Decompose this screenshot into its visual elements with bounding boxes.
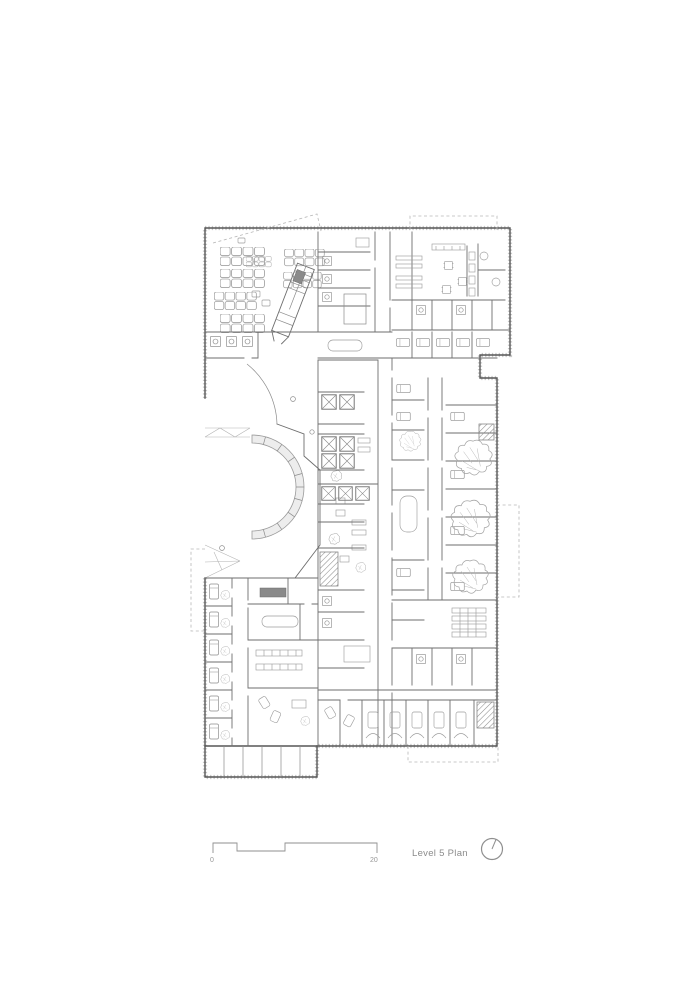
floor-plan-drawing: 0 20 Level 5 Plan	[0, 0, 700, 990]
bed	[210, 640, 219, 655]
lounge-chairs	[258, 696, 310, 726]
bed	[451, 526, 465, 534]
column-bubble	[220, 546, 225, 551]
fixture	[457, 655, 466, 664]
bed	[456, 339, 469, 347]
south-stair	[477, 702, 494, 728]
plant	[221, 646, 230, 655]
fixture	[457, 306, 466, 315]
bed	[451, 412, 465, 420]
core-stair	[320, 552, 338, 586]
scale-label-end: 20	[370, 857, 378, 864]
north-arrow-icon	[482, 839, 503, 860]
column-bubble	[291, 397, 296, 402]
elevator	[340, 454, 354, 468]
plant	[329, 533, 340, 544]
bed	[397, 412, 411, 420]
workstation-cluster	[220, 314, 264, 333]
elevator	[322, 454, 336, 468]
workstation-cluster	[220, 269, 264, 288]
fixture	[227, 337, 237, 347]
fixture	[323, 293, 332, 302]
feature-stair	[268, 263, 314, 345]
garden-tree	[453, 560, 489, 593]
bed	[210, 696, 219, 711]
table	[442, 286, 452, 294]
conference-table	[262, 616, 298, 627]
roof-dashed-outline-se	[408, 746, 498, 762]
bed	[210, 584, 219, 599]
open-office-area	[205, 232, 370, 358]
central-core	[318, 332, 497, 746]
av-console	[260, 588, 286, 597]
southwest-block	[205, 578, 318, 746]
bed	[396, 339, 409, 347]
garden-tree	[400, 431, 421, 451]
bed	[210, 612, 219, 627]
sheet: 0 20 Level 5 Plan	[0, 0, 700, 990]
table	[444, 262, 454, 270]
plant	[221, 702, 230, 711]
footer: 0 20 Level 5 Plan	[210, 839, 503, 865]
reception-room	[205, 332, 318, 358]
garden-tree	[451, 500, 490, 537]
bed	[210, 668, 219, 683]
balcony-dashed-outline-e	[497, 505, 519, 597]
scale-bar	[213, 843, 377, 853]
bed	[476, 339, 489, 347]
plan-title: Level 5 Plan	[412, 848, 468, 859]
elevator	[340, 395, 354, 409]
fixture	[243, 337, 253, 347]
elevator	[322, 487, 336, 501]
atrium-fan-upper	[205, 428, 250, 437]
service-elevator	[479, 424, 494, 440]
scale-label-start: 0	[210, 857, 214, 864]
elevator	[340, 437, 354, 451]
plant	[301, 716, 310, 725]
fixture	[211, 337, 221, 347]
northeast-lounge	[392, 232, 510, 358]
plant	[221, 730, 230, 739]
bed	[210, 724, 219, 739]
east-ward	[318, 378, 497, 700]
terrace	[224, 746, 300, 777]
bed	[397, 568, 411, 576]
fixture	[417, 306, 426, 315]
fixture	[323, 597, 332, 606]
training-tables	[256, 650, 302, 670]
plant	[221, 618, 230, 627]
elevator	[322, 437, 336, 451]
bed	[416, 339, 429, 347]
bed	[397, 384, 411, 392]
table	[458, 278, 468, 286]
atrium-corridor-edge	[205, 424, 320, 578]
column-bubble	[310, 430, 314, 434]
atrium-fan-lower	[205, 545, 240, 578]
plant	[221, 674, 230, 683]
fixture	[417, 655, 426, 664]
office-column	[318, 232, 370, 332]
bed	[436, 339, 449, 347]
elevator	[322, 395, 336, 409]
bedroom-beds	[366, 712, 468, 738]
elevator	[339, 487, 353, 501]
atrium	[205, 364, 370, 578]
fixture	[323, 619, 332, 628]
atrium-upper-balcony-edge	[247, 364, 277, 424]
elevator	[356, 487, 370, 501]
plant	[221, 590, 230, 599]
meeting-table	[328, 340, 362, 351]
workstation-cluster	[214, 292, 256, 310]
exterior-walls	[205, 228, 510, 777]
long-table	[400, 496, 417, 532]
plant	[331, 470, 342, 481]
garden-tree	[455, 440, 492, 475]
fixture	[323, 275, 332, 284]
plant	[356, 562, 366, 572]
auditorium-rows	[452, 608, 486, 637]
balcony-dashed-outline-w	[191, 549, 205, 631]
south-bedroom-row	[324, 700, 494, 746]
